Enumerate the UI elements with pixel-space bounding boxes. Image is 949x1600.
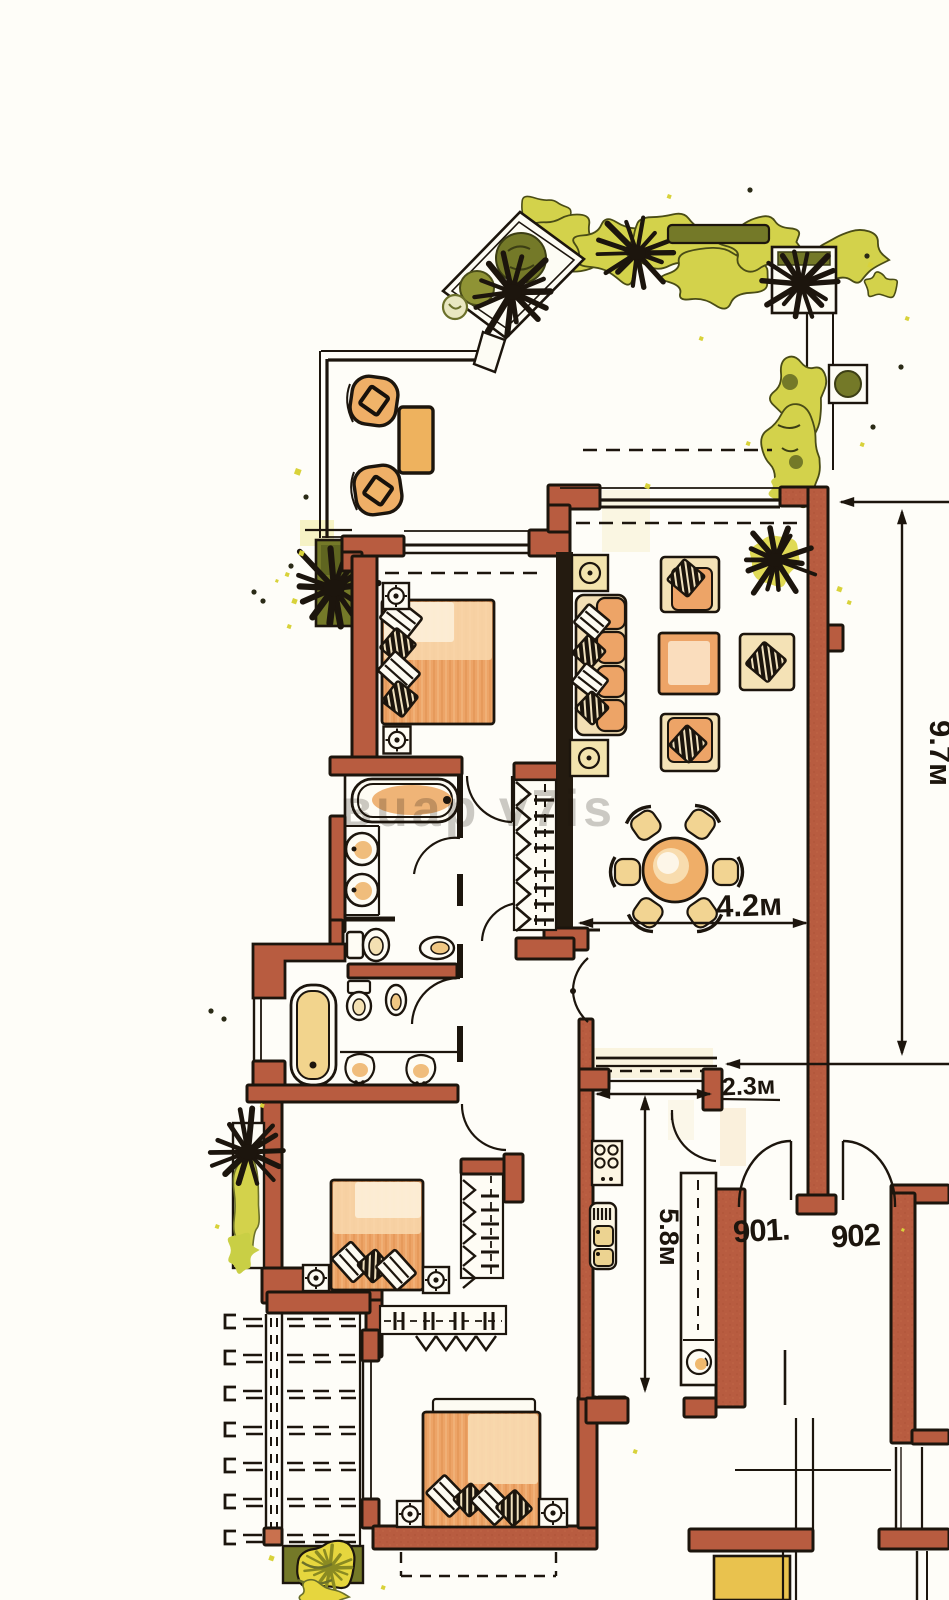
- svg-text:9.7м: 9.7м: [923, 720, 949, 786]
- svg-text:2.3м: 2.3м: [721, 1071, 775, 1101]
- svg-text:901.: 901.: [732, 1211, 790, 1249]
- svg-text:4.2м: 4.2м: [715, 887, 782, 924]
- svg-text:вuap v7is: вuap v7is: [340, 780, 616, 838]
- svg-text:5.8м: 5.8м: [654, 1208, 684, 1266]
- svg-text:902: 902: [830, 1217, 880, 1255]
